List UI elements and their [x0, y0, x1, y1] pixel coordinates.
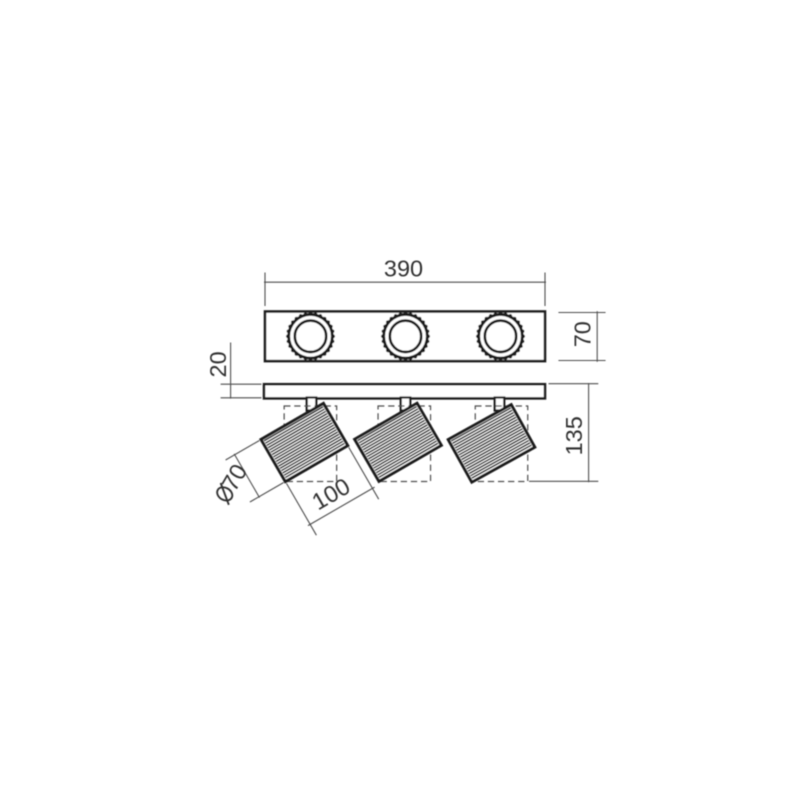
svg-text:70: 70 [570, 321, 596, 347]
svg-text:390: 390 [384, 256, 423, 282]
svg-text:135: 135 [561, 416, 587, 455]
svg-text:20: 20 [205, 351, 231, 377]
